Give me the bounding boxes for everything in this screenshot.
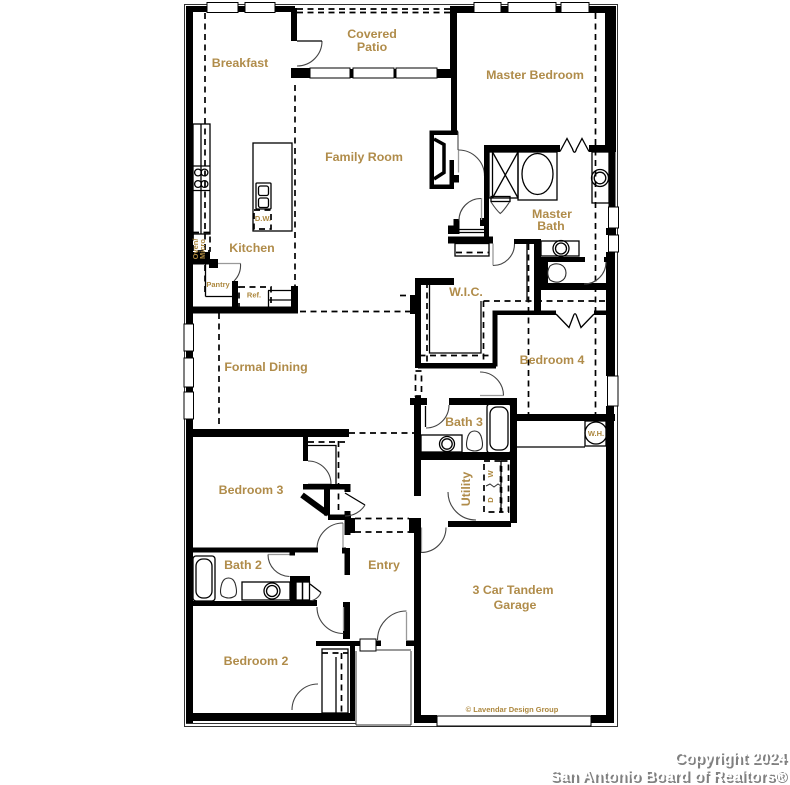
svg-text:Utility: Utility — [459, 472, 473, 507]
svg-text:Kitchen: Kitchen — [229, 241, 274, 255]
svg-text:Formal Dining: Formal Dining — [224, 360, 307, 374]
svg-text:Bath 2: Bath 2 — [224, 558, 262, 572]
svg-text:W: W — [486, 470, 495, 478]
svg-text:D: D — [486, 497, 495, 503]
svg-text:Bedroom 4: Bedroom 4 — [520, 353, 585, 367]
svg-text:Entry: Entry — [368, 558, 400, 572]
svg-text:© Lavendar Design Group: © Lavendar Design Group — [466, 705, 559, 714]
svg-text:Micro: Micro — [198, 239, 207, 259]
svg-text:Pantry: Pantry — [206, 280, 230, 289]
svg-text:Bedroom 3: Bedroom 3 — [219, 483, 284, 497]
svg-text:Breakfast: Breakfast — [212, 56, 268, 70]
svg-text:Covered: Covered — [347, 27, 397, 41]
svg-text:W.H.: W.H. — [588, 429, 604, 438]
svg-text:Patio: Patio — [357, 40, 388, 54]
svg-text:Garage: Garage — [494, 598, 537, 612]
svg-text:Bath 3: Bath 3 — [445, 415, 483, 429]
svg-text:3 Car Tandem: 3 Car Tandem — [472, 583, 553, 597]
svg-text:Bedroom 2: Bedroom 2 — [224, 654, 289, 668]
svg-text:Bath: Bath — [537, 219, 565, 233]
svg-text:Family Room: Family Room — [325, 150, 403, 164]
svg-text:D.W.: D.W. — [255, 214, 271, 223]
svg-text:W.I.C.: W.I.C. — [449, 285, 483, 299]
svg-text:Master Bedroom: Master Bedroom — [486, 68, 584, 82]
svg-text:Ref.: Ref. — [247, 291, 261, 300]
